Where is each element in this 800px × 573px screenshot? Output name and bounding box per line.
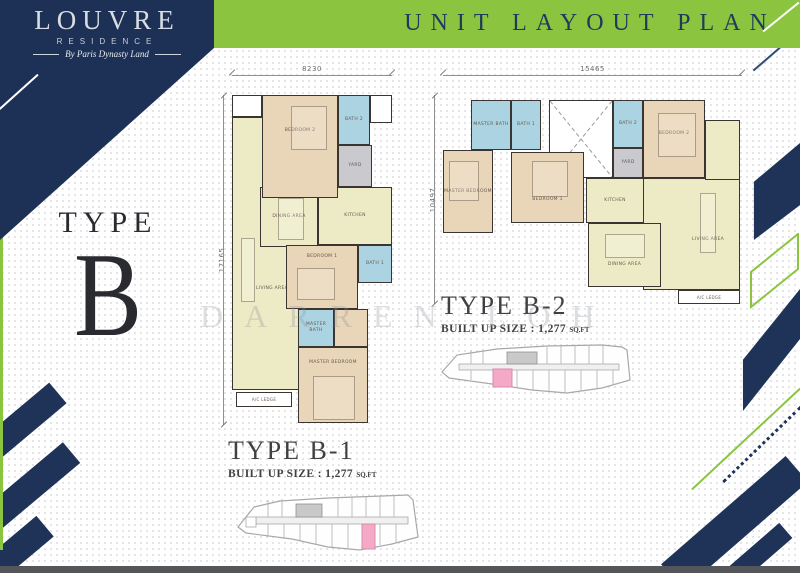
room-yard-b1: YARD (338, 145, 372, 187)
dimension-b1-height: 17165 (214, 95, 230, 425)
dimension-b2-width: 15465 (443, 66, 742, 78)
tagline-line-left (33, 54, 59, 55)
bed-outline (532, 161, 568, 197)
keyplan-b2 (437, 338, 642, 400)
built-up-b1: BUILT UP SIZE : 1,277 SQ.FT (228, 468, 376, 480)
room-label: A/C LEDGE (697, 295, 721, 300)
room-master-bath-b2: MASTER BATH (471, 100, 511, 150)
built-up-b2: BUILT UP SIZE : 1,277 SQ.FT (441, 323, 589, 335)
logo-title: LOUVRE (0, 5, 214, 36)
built-up-text: BUILT UP SIZE : 1,277 (228, 468, 353, 480)
logo-tagline: By Paris Dynasty Land (0, 49, 214, 59)
plan-name-b1: TYPE B-1 (228, 436, 376, 466)
room-kitchen-b2: KITCHEN (586, 178, 644, 223)
bed-outline (313, 376, 355, 420)
room-label: YARD (348, 163, 361, 169)
highlighted-unit (493, 369, 512, 387)
annex-block (246, 517, 256, 527)
page-title: UNIT LAYOUT PLAN (400, 10, 780, 37)
room-label: BEDROOM 1 (287, 254, 357, 260)
bed-outline (449, 161, 479, 201)
room-label: A/C LEDGE (252, 397, 276, 402)
dimension-b1-width: 8230 (232, 66, 392, 78)
floorplan-b2: LIVING AREA DINING AREA KITCHEN MASTER B… (443, 95, 742, 304)
table-outline (605, 234, 645, 258)
keyplan-b1 (232, 487, 432, 562)
built-up-unit: SQ.FT (356, 471, 376, 479)
corridor (459, 364, 619, 370)
room-label: KITCHEN (604, 198, 626, 204)
bed-outline (291, 106, 327, 150)
core-block (507, 352, 537, 364)
room-label: MASTER BATH (299, 322, 333, 333)
room-label: DINING AREA (589, 262, 660, 268)
room-bedroom2-b2: BEDROOM 2 (643, 100, 705, 178)
bed-outline (658, 113, 696, 157)
logo-subtitle: RESIDENCE (0, 37, 214, 46)
room-ac-ledge-b2: A/C LEDGE (678, 290, 740, 304)
room-master-bedroom-b2: MASTER BEDROOM (443, 150, 493, 233)
room-bedroom1-b1: BEDROOM 1 (286, 245, 358, 309)
room-bath2-b2: BATH 2 (613, 100, 643, 148)
tagline-line-right (155, 54, 181, 55)
room-label: BEDROOM 1 (512, 197, 583, 203)
dimension-b2-height-label: 10497 (429, 180, 437, 220)
room-label: BATH 1 (517, 122, 535, 128)
room-bath1-b2: BATH 1 (511, 100, 541, 150)
room-bedroom2-b1: BEDROOM 2 (262, 95, 338, 198)
room-label: BATH 1 (366, 261, 384, 267)
type-panel: TYPE B (48, 206, 168, 350)
dimension-b1-height-label: 17165 (218, 240, 226, 280)
room-master-bedroom-b1: MASTER BEDROOM (298, 347, 368, 423)
core-block (296, 504, 322, 517)
room-label: BATH 2 (619, 121, 637, 127)
corridor (256, 517, 408, 524)
room-label: BATH 2 (345, 117, 363, 123)
room-label: YARD (621, 160, 634, 166)
room-bath1-b1: BATH 1 (358, 245, 392, 283)
room-bedroom1-b2: BEDROOM 1 (511, 152, 584, 223)
flyer-page: UNIT LAYOUT PLAN LOUVRE RESIDENCE By Par… (0, 0, 800, 573)
dimension-b2-width-label: 15465 (443, 65, 742, 73)
type-letter: B (57, 240, 159, 350)
highlighted-unit (362, 524, 375, 549)
built-up-unit: SQ.FT (569, 326, 589, 334)
room-label: KITCHEN (344, 213, 366, 219)
room-label: MASTER BEDROOM (299, 360, 367, 366)
floorplan-b1: LIVING AREA DINING AREA KITCHEN BEDROOM … (232, 95, 392, 425)
bottom-edge-bar (0, 566, 800, 573)
room-yard-b2: YARD (613, 148, 643, 178)
room-master-bath-b1: MASTER BATH (298, 309, 334, 347)
closet-b1 (370, 95, 392, 123)
bed-outline (297, 268, 335, 300)
room-wardrobe-b1 (334, 309, 368, 347)
bottom-left-stripe-3 (0, 516, 54, 573)
right-green-chevron-icon (750, 233, 800, 309)
caption-b2: TYPE B-2 BUILT UP SIZE : 1,277 SQ.FT (441, 291, 589, 335)
room-label: MASTER BATH (473, 122, 508, 128)
logo-block (0, 0, 214, 240)
room-ac-ledge-b1: A/C LEDGE (236, 392, 292, 407)
caption-b1: TYPE B-1 BUILT UP SIZE : 1,277 SQ.FT (228, 436, 376, 480)
dimension-b2-height: 10497 (425, 95, 441, 304)
balcony-notch-b1 (232, 95, 262, 117)
built-up-text: BUILT UP SIZE : 1,277 (441, 323, 566, 335)
sofa-outline (241, 238, 255, 302)
right-navy-band-top (752, 143, 800, 240)
room-dining-b2: DINING AREA (588, 223, 661, 287)
tagline-text: By Paris Dynasty Land (65, 49, 149, 59)
room-bath2-b1: BATH 2 (338, 95, 370, 145)
sofa-outline (700, 193, 716, 253)
room-living-upper-b2 (705, 120, 740, 180)
dimension-b1-width-label: 8230 (232, 65, 392, 73)
table-outline (278, 198, 304, 240)
plan-name-b2: TYPE B-2 (441, 291, 589, 321)
